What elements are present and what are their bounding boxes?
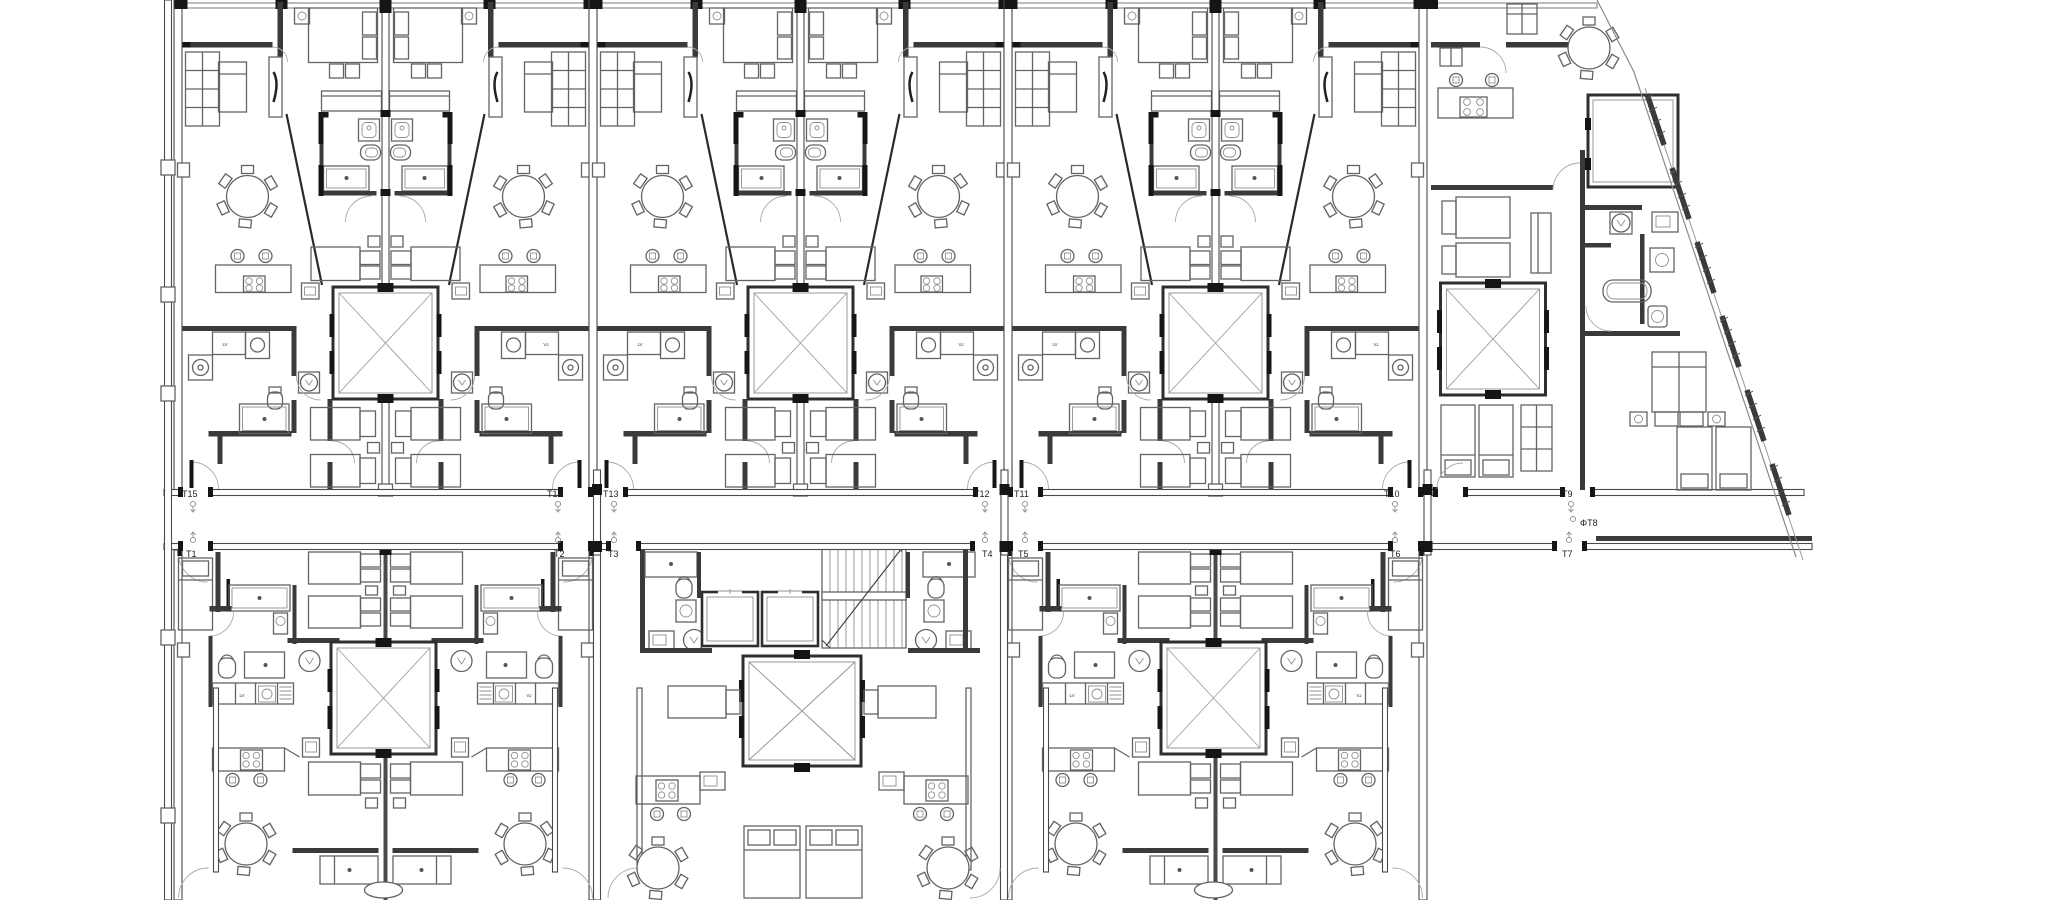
svg-text:T5: T5 [1018,549,1029,559]
svg-text:T14: T14 [547,489,563,499]
svg-text:T4: T4 [982,549,993,559]
svg-text:T3: T3 [608,549,619,559]
svg-text:T10: T10 [1384,489,1400,499]
svg-text:T6: T6 [1390,549,1401,559]
svg-text:T1: T1 [186,549,197,559]
svg-text:T12: T12 [974,489,990,499]
svg-text:T11: T11 [1014,489,1029,499]
svg-text:ΦT8: ΦT8 [1580,518,1598,528]
svg-text:T7: T7 [1562,549,1573,559]
svg-text:T15: T15 [182,489,198,499]
svg-text:T9: T9 [1562,489,1573,499]
svg-text:T13: T13 [603,489,619,499]
svg-text:T2: T2 [554,549,565,559]
